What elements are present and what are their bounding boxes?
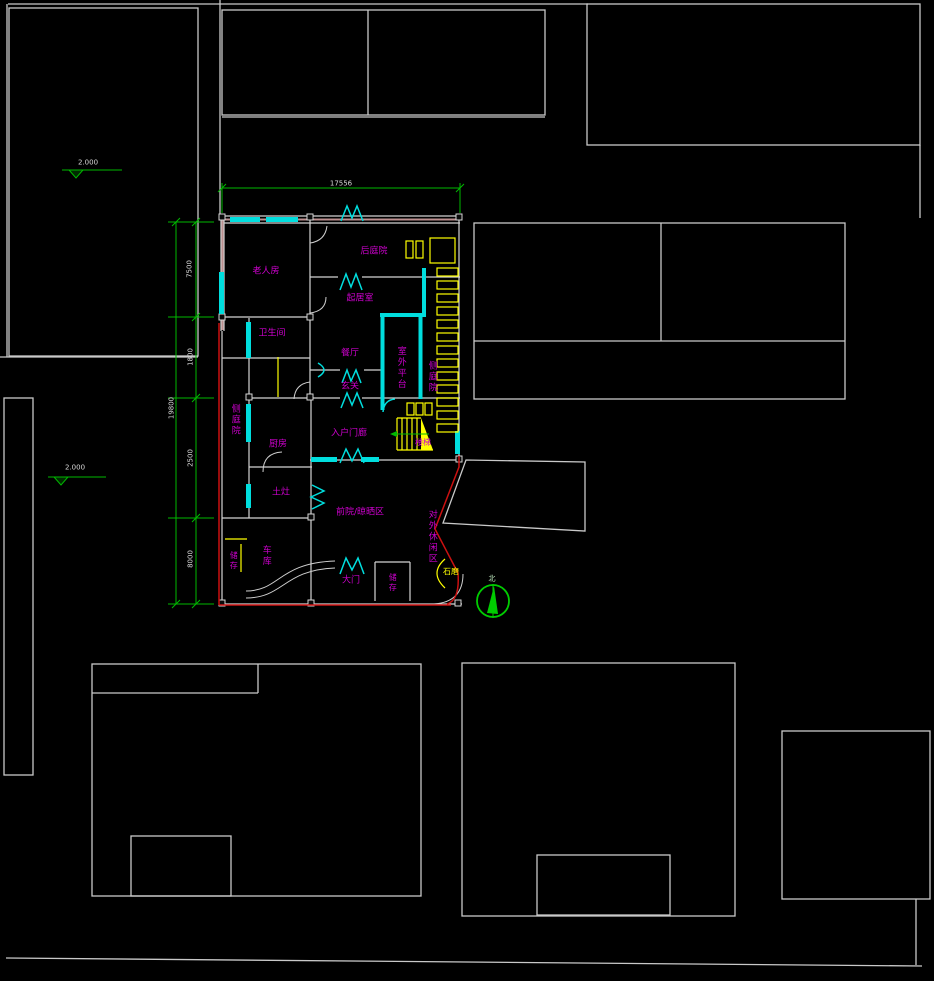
room-label-side-courtyard-left: 侧庭院 [229, 404, 238, 437]
building-southwest [92, 664, 421, 896]
dimension-left-segment-1: 7500 [186, 260, 193, 278]
north-compass [477, 584, 509, 618]
building-skewed-east [443, 460, 585, 531]
room-label-stone-mill: 石磨 [443, 568, 459, 576]
plot-northwest [9, 8, 198, 356]
elevation-marker-1 [62, 170, 122, 178]
room-label-front-yard: 前院/晾晒区 [336, 508, 384, 517]
elevation-marker-2 [48, 477, 106, 485]
room-label-stairs: 楼梯 [415, 439, 431, 447]
red-site-boundary [219, 323, 459, 605]
room-label-side-courtyard-right: 侧庭院 [426, 361, 435, 394]
room-label-garage: 车库 [260, 545, 269, 567]
building-east [474, 223, 845, 399]
building-southwest-notch [92, 664, 258, 693]
room-label-elder-room: 老人房 [252, 267, 279, 276]
strip-west [4, 398, 33, 775]
room-label-bathroom: 卫生间 [258, 329, 285, 338]
room-label-storage-south: 储存 [388, 573, 396, 593]
room-label-living-room: 起居室 [346, 294, 373, 303]
dimension-top-total: 17556 [330, 180, 352, 187]
room-label-leisure-area: 对外休闲区 [426, 510, 435, 565]
elevation-value-1: 2.000 [78, 159, 98, 166]
building-east-dividers [474, 223, 845, 341]
building-northeast [587, 4, 920, 145]
room-label-dining-room: 餐厅 [341, 349, 359, 358]
south-boundary-line [6, 899, 922, 966]
cad-drawing-canvas: 老人房 后庭院 起居室 卫生间 餐厅 室外平台 侧庭院 侧庭院 玄关 入户门廊 … [0, 0, 934, 981]
window-segments [219, 217, 460, 508]
dimension-left-segment-4: 8000 [187, 550, 194, 568]
room-label-kitchen: 厨房 [269, 440, 287, 449]
dimension-left-segment-2: 1800 [187, 348, 194, 366]
plot-northwest-outer [0, 4, 198, 357]
room-label-foyer: 玄关 [341, 382, 359, 391]
compass-north-label: 北 [489, 575, 496, 582]
room-label-entry-porch: 入户门廊 [331, 429, 367, 438]
dimension-left-segment-3: 2500 [187, 449, 194, 467]
building-south-inner [537, 855, 670, 915]
room-label-earthen-stove: 土灶 [272, 488, 290, 497]
building-southeast [782, 731, 930, 899]
drawing-geometry [0, 0, 934, 981]
room-label-outdoor-platform: 室外平台 [395, 346, 404, 390]
room-label-rear-courtyard: 后庭院 [360, 247, 387, 256]
room-label-storage-west: 储存 [229, 551, 237, 571]
building-southwest-inner [131, 836, 231, 896]
site-outlines [0, 0, 930, 966]
elevation-value-2: 2.000 [65, 464, 85, 471]
building-north-divider [222, 10, 545, 117]
dimension-left-total: 19800 [168, 397, 175, 419]
building-south [462, 663, 735, 916]
building-north [222, 10, 545, 115]
room-label-main-gate: 大门 [342, 576, 360, 585]
